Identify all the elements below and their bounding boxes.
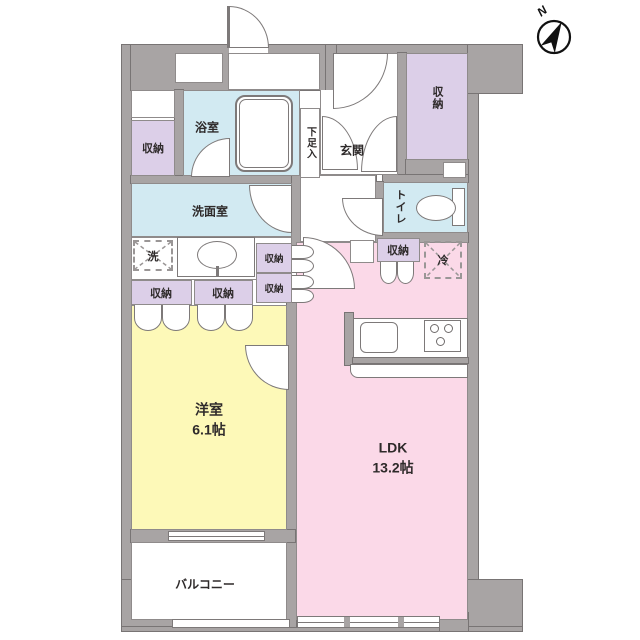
floor-plan: 洋室 6.1帖 LDK 13.2帖 浴室 洗面室 玄関 下足入 トイレ バルコニ… xyxy=(0,0,640,640)
wall xyxy=(287,283,296,542)
closet-bifold-door xyxy=(225,305,253,331)
front-door-swing xyxy=(229,6,269,48)
kitchen-counter-divider xyxy=(353,358,468,363)
ldk-window xyxy=(297,616,440,628)
pipe-space-box xyxy=(131,90,175,118)
north-label: N xyxy=(534,3,550,20)
storage-label: 収納 xyxy=(142,140,164,156)
storage-label: 収納 xyxy=(264,251,283,265)
wall xyxy=(287,542,296,627)
western-room-label: 洋室 6.1帖 xyxy=(192,400,225,441)
toilet-bowl xyxy=(416,195,456,221)
window-mullion xyxy=(344,617,350,627)
wall xyxy=(468,93,478,580)
storage-label: 収納 xyxy=(387,242,409,258)
ldk-label: LDK 13.2帖 xyxy=(372,438,413,479)
storage-label: 収納 xyxy=(150,285,172,301)
meter-box xyxy=(175,53,223,83)
balcony-label: バルコニー xyxy=(175,576,235,593)
closet-bifold-door xyxy=(292,259,314,273)
closet-bifold-door xyxy=(197,305,225,331)
bathtub-inner xyxy=(239,99,289,168)
wall xyxy=(292,176,300,245)
storage-label: 収納 xyxy=(264,281,283,295)
bathroom-label: 浴室 xyxy=(195,119,219,136)
storage-label: 収納 xyxy=(212,285,234,301)
balcony-railing xyxy=(172,619,290,628)
closet-bifold-door xyxy=(397,262,414,284)
wall xyxy=(175,90,183,176)
pipe-space-notch xyxy=(443,162,466,178)
stove-burner xyxy=(430,324,439,333)
refrigerator-label: 冷 xyxy=(438,252,449,268)
western-room-window xyxy=(168,531,265,541)
window-mullion xyxy=(398,617,404,627)
wall xyxy=(468,580,522,631)
wall xyxy=(122,45,131,631)
toilet-label: トイレ xyxy=(392,189,408,225)
washer-label: 洗 xyxy=(148,248,159,264)
wall xyxy=(398,53,406,175)
wall xyxy=(131,176,300,183)
stove-burner xyxy=(444,324,453,333)
storage-label: 収納 xyxy=(429,86,445,110)
shoe-storage-label: 下足入 xyxy=(303,127,318,160)
closet-bifold-door xyxy=(292,289,314,303)
closet-bifold-door xyxy=(292,275,314,289)
ldk-area xyxy=(296,242,468,620)
kitchen-stove xyxy=(424,320,461,352)
stove-burner xyxy=(436,337,445,346)
kitchen-wall-stub xyxy=(345,313,353,365)
north-compass-icon: N xyxy=(529,2,581,62)
vanity-sink xyxy=(197,241,237,269)
closet-bifold-door xyxy=(292,245,314,259)
closet-bifold-door xyxy=(380,262,397,284)
entrance-label: 玄関 xyxy=(340,142,364,159)
closet-bifold-door xyxy=(134,305,162,331)
vanity-sink-drain xyxy=(216,266,219,277)
western-room-name: 洋室 xyxy=(192,400,225,420)
kitchen-sink xyxy=(360,322,398,353)
closet-bifold-door xyxy=(162,305,190,331)
ldk-size: 13.2帖 xyxy=(372,458,413,478)
ldk-name: LDK xyxy=(372,438,413,458)
western-room-size: 6.1帖 xyxy=(192,420,225,440)
washroom-label: 洗面室 xyxy=(192,203,228,220)
entrance-vestibule xyxy=(228,53,320,90)
kitchen-lower-counter xyxy=(350,364,468,378)
wall xyxy=(468,45,522,93)
pillar-box xyxy=(350,240,374,263)
